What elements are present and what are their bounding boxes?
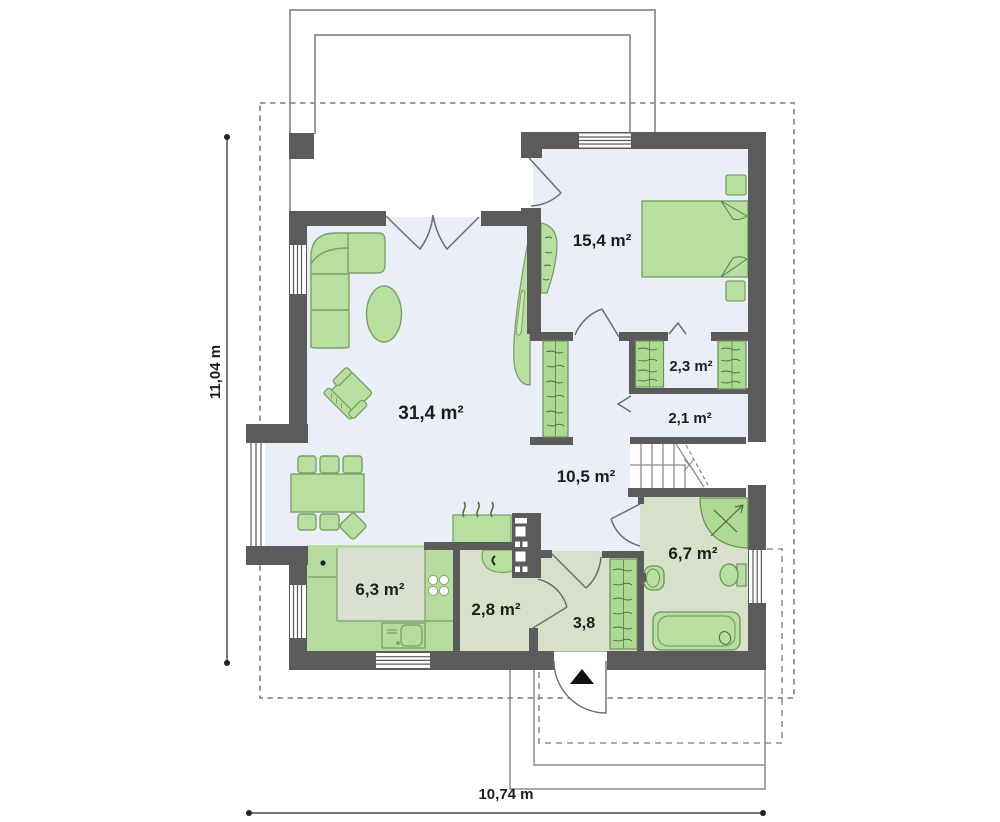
svg-text:10,5 m²: 10,5 m² bbox=[557, 467, 616, 486]
svg-text:2,3 m²: 2,3 m² bbox=[669, 358, 712, 375]
svg-text:6,7 m²: 6,7 m² bbox=[668, 544, 717, 563]
svg-text:31,4 m²: 31,4 m² bbox=[398, 403, 463, 424]
svg-text:11,04 m: 11,04 m bbox=[207, 345, 224, 399]
svg-text:2,8 m²: 2,8 m² bbox=[471, 600, 520, 619]
svg-text:10,74 m: 10,74 m bbox=[478, 786, 533, 803]
svg-text:6,3 m²: 6,3 m² bbox=[355, 580, 404, 599]
svg-text:3,8: 3,8 bbox=[573, 615, 595, 632]
svg-text:15,4 m²: 15,4 m² bbox=[573, 231, 632, 250]
svg-text:2,1 m²: 2,1 m² bbox=[668, 410, 711, 427]
